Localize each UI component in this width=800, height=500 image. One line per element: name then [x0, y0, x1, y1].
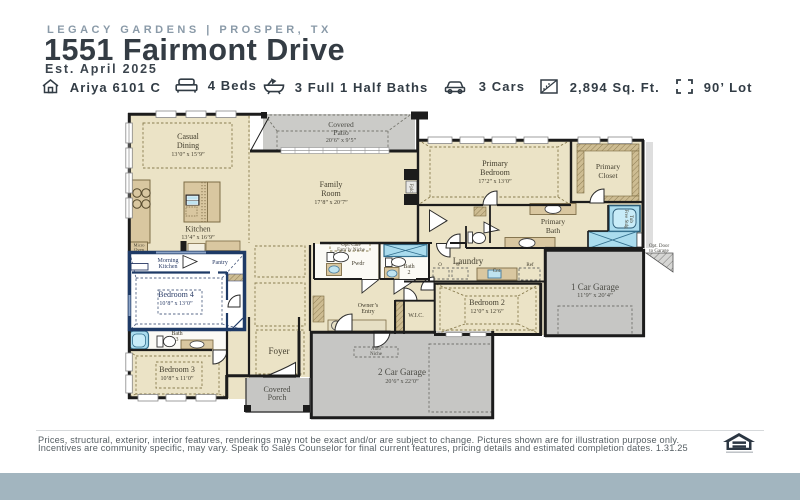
svg-text:20’6” x 9’5”: 20’6” x 9’5”: [326, 138, 357, 144]
svg-text:Oven: Oven: [134, 247, 144, 252]
svg-text:Cnt.: Cnt.: [493, 269, 501, 274]
svg-text:Family: Family: [320, 180, 343, 189]
svg-text:12’0” x 12’6”: 12’0” x 12’6”: [470, 309, 504, 315]
svg-text:W.I.C.: W.I.C.: [408, 313, 424, 319]
svg-text:Bedroom 3: Bedroom 3: [159, 365, 195, 374]
svg-text:17’8” x 20’7”: 17’8” x 20’7”: [314, 200, 348, 206]
svg-text:11’9” x 20’4”: 11’9” x 20’4”: [577, 292, 613, 299]
svg-text:17’2” x 13’0”: 17’2” x 13’0”: [478, 179, 512, 185]
svg-text:Kitchen: Kitchen: [185, 225, 210, 234]
svg-text:Patio: Patio: [333, 128, 349, 137]
svg-text:Tub: Tub: [628, 215, 633, 223]
svg-text:Dining: Dining: [177, 141, 199, 150]
svg-text:O: O: [438, 263, 442, 268]
svg-text:Ref: Ref: [526, 263, 534, 268]
svg-text:W: W: [456, 263, 461, 268]
svg-text:Bedroom 2: Bedroom 2: [469, 298, 505, 307]
svg-text:13’0” x 15’9”: 13’0” x 15’9”: [171, 152, 205, 158]
svg-text:3: 3: [176, 337, 179, 343]
svg-text:Bath: Bath: [546, 226, 560, 235]
svg-text:Pwdr: Pwdr: [352, 261, 365, 267]
svg-text:Bedroom 4: Bedroom 4: [158, 290, 194, 299]
svg-text:Niche: Niche: [370, 352, 383, 357]
svg-text:1 Car Garage: 1 Car Garage: [571, 282, 619, 292]
svg-text:2 Car Garage: 2 Car Garage: [378, 367, 426, 377]
svg-text:Porch: Porch: [268, 393, 287, 402]
svg-text:Foyer: Foyer: [269, 346, 290, 356]
svg-text:Fam’ly Niche: Fam’ly Niche: [337, 248, 365, 253]
svg-text:to Garage: to Garage: [649, 249, 669, 254]
svg-text:Pantry: Pantry: [212, 260, 228, 266]
svg-text:Free Stdg: Free Stdg: [623, 209, 628, 229]
svg-text:Kitchen: Kitchen: [159, 264, 178, 270]
svg-text:Primary: Primary: [541, 217, 565, 226]
svg-text:Room: Room: [321, 189, 341, 198]
svg-text:Casual: Casual: [177, 132, 200, 141]
svg-text:Fplc: Fplc: [408, 184, 413, 194]
svg-text:Closet: Closet: [598, 171, 618, 180]
svg-text:Primary: Primary: [596, 162, 620, 171]
svg-text:Primary: Primary: [482, 159, 508, 168]
svg-text:10’8” x 13’0”: 10’8” x 13’0”: [159, 301, 193, 307]
svg-text:Bedroom: Bedroom: [480, 168, 511, 177]
svg-text:2: 2: [408, 270, 411, 276]
svg-text:Entry: Entry: [361, 309, 374, 315]
svg-text:20’6” x 22’0”: 20’6” x 22’0”: [385, 379, 419, 385]
svg-text:13’4” x 16’9”: 13’4” x 16’9”: [181, 235, 215, 241]
svg-text:10’8” x 11’0”: 10’8” x 11’0”: [160, 376, 193, 382]
